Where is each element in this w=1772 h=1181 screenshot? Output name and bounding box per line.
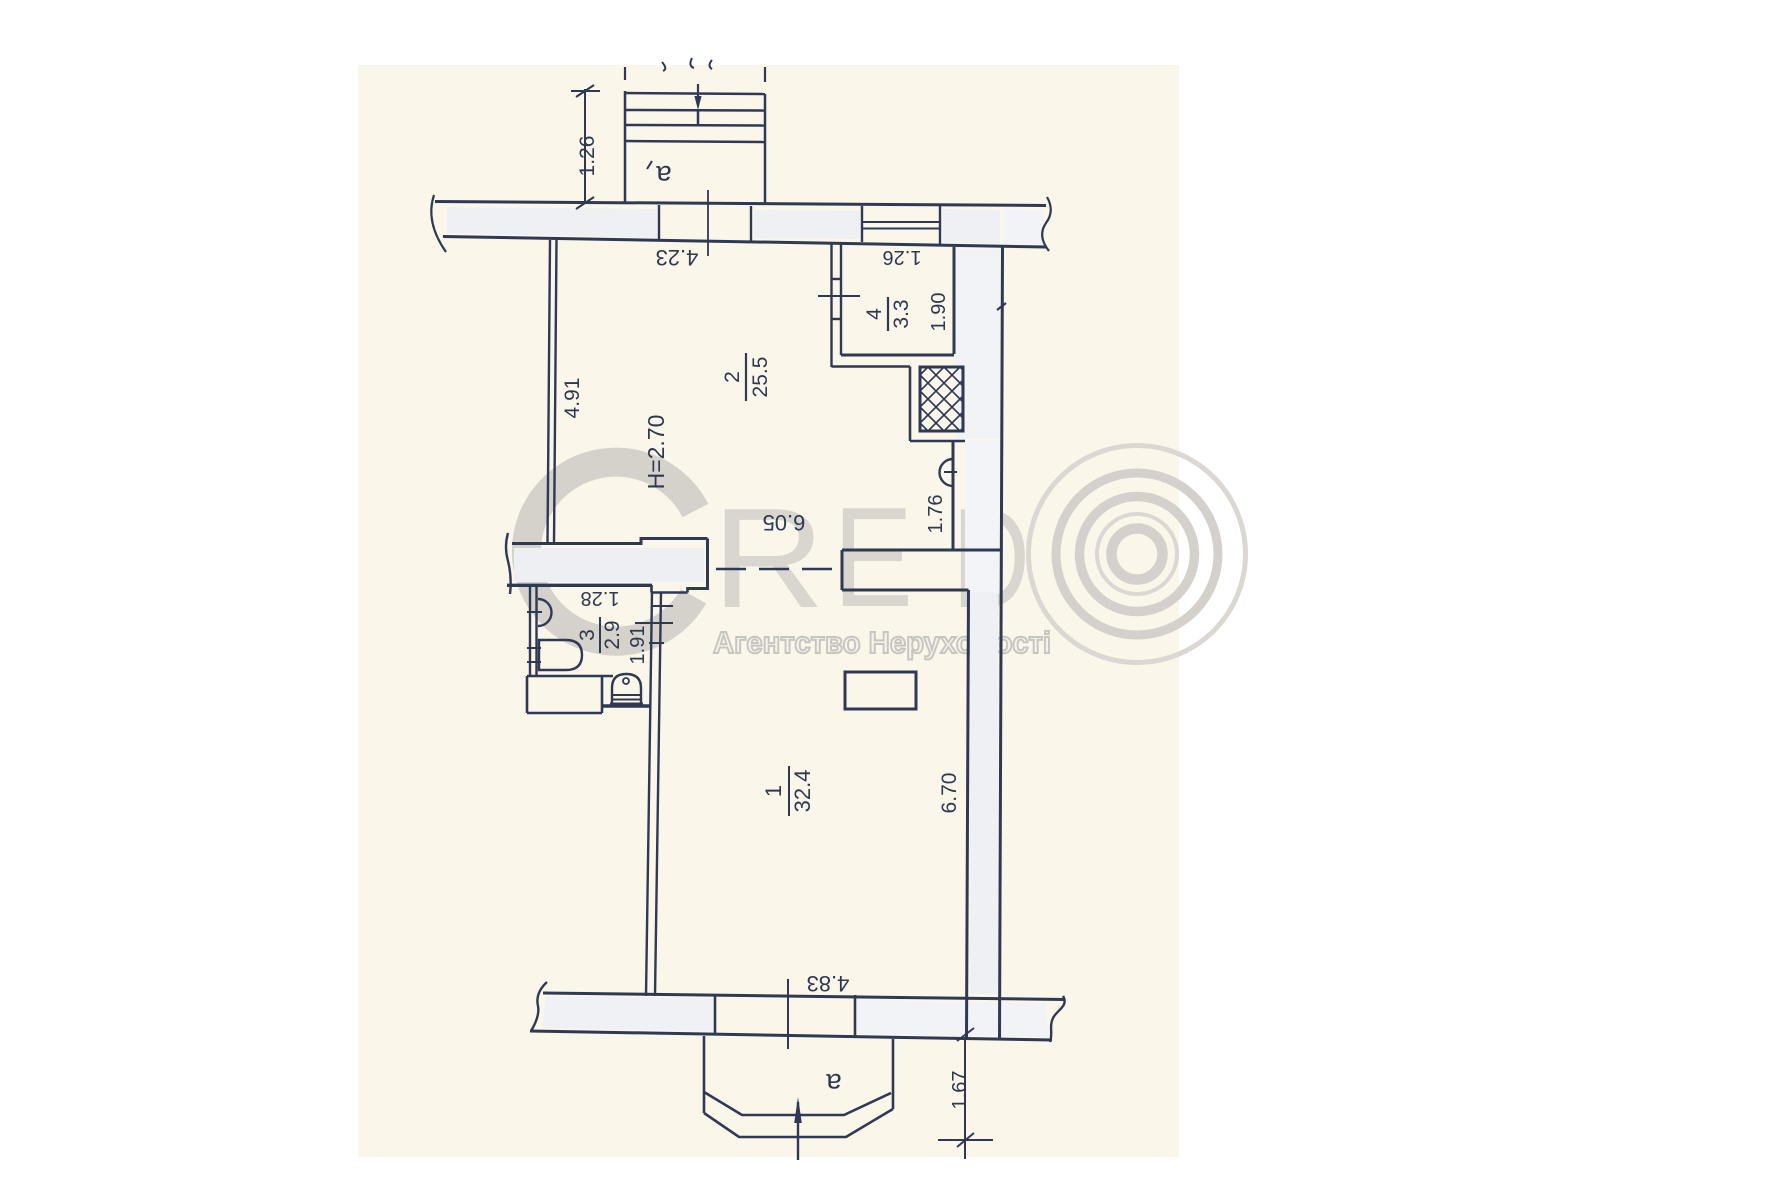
svg-text:E: E	[833, 478, 913, 637]
svg-text:1.76: 1.76	[925, 495, 947, 534]
svg-text:6.05: 6.05	[763, 510, 806, 535]
svg-text:1.90: 1.90	[928, 293, 950, 332]
svg-text:3: 3	[576, 629, 599, 641]
svg-text:6.70: 6.70	[938, 773, 961, 814]
svg-text:1.67: 1.67	[949, 1071, 971, 1110]
svg-text:2.9: 2.9	[601, 620, 624, 649]
svg-text:32.4: 32.4	[790, 770, 815, 813]
svg-text:4.23: 4.23	[656, 245, 699, 270]
svg-text:1.91: 1.91	[627, 626, 649, 665]
svg-text:4.83: 4.83	[807, 971, 850, 996]
svg-text:25.5: 25.5	[749, 357, 772, 398]
svg-text:4: 4	[863, 308, 886, 320]
svg-text:1.26: 1.26	[576, 136, 599, 177]
svg-text:1.26: 1.26	[883, 246, 922, 268]
svg-text:R: R	[712, 479, 825, 638]
svg-text:3.3: 3.3	[890, 299, 913, 328]
svg-text:H=2.70: H=2.70	[643, 415, 669, 490]
svg-text:2: 2	[721, 371, 744, 383]
svg-text:1.28: 1.28	[581, 587, 620, 609]
svg-text:а: а	[656, 160, 672, 191]
svg-text:а: а	[826, 1068, 842, 1099]
svg-text:1: 1	[761, 785, 786, 797]
svg-text:4.91: 4.91	[561, 378, 584, 419]
